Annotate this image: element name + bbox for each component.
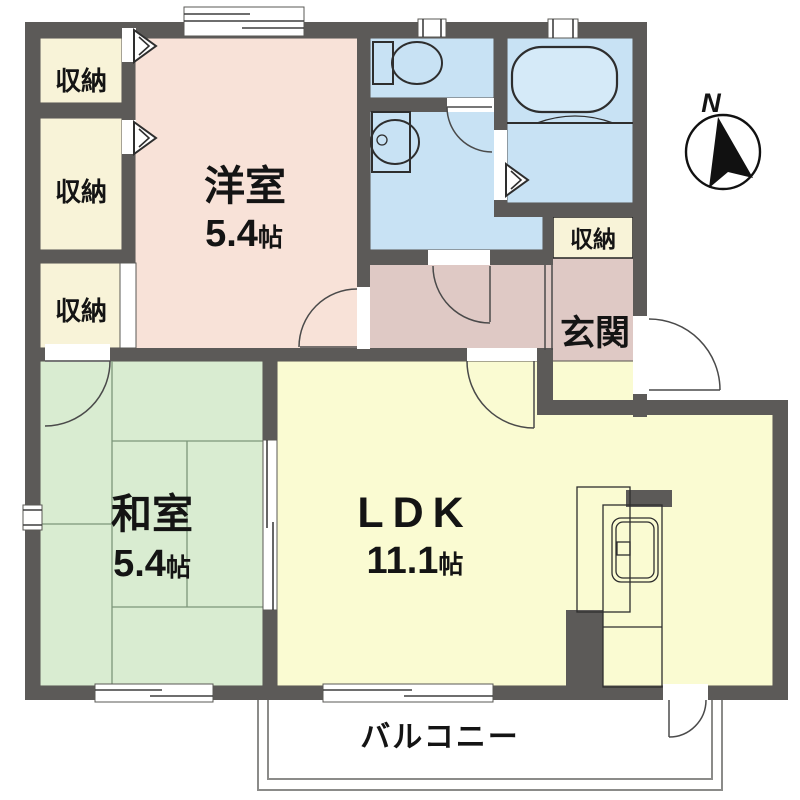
wall-segment xyxy=(357,348,467,361)
wall-segment xyxy=(357,22,370,290)
closet1-label: 収納 xyxy=(55,66,107,96)
north-label: N xyxy=(701,88,721,118)
wall-segment xyxy=(494,203,647,217)
floor-plan-canvas: N 収納 収納 収納 洋室 5.4帖 和室 5.4帖 LDK 11.1帖 玄関 … xyxy=(0,0,800,800)
closet3-door-opening xyxy=(45,344,110,362)
western-room-label: 洋室 xyxy=(204,163,286,209)
window-western-top xyxy=(184,7,304,36)
wall-segment xyxy=(773,400,788,700)
entrance-closet-label: 収納 xyxy=(570,226,616,252)
wall-segment xyxy=(25,103,135,118)
back-door-opening xyxy=(663,684,708,702)
wall-segment xyxy=(357,98,447,112)
floor-plan: N 収納 収納 収納 洋室 5.4帖 和室 5.4帖 LDK 11.1帖 玄関 … xyxy=(0,0,800,800)
sliding-door-japanese-ldk xyxy=(263,440,277,610)
window-japanese-bottom xyxy=(95,684,213,702)
hallway-floor xyxy=(370,265,553,350)
toilet-door-opening xyxy=(447,98,494,112)
western-door-opening xyxy=(357,287,370,349)
wall-segment xyxy=(25,250,135,263)
closet3-side-panel xyxy=(120,263,136,348)
wall-segment xyxy=(25,22,40,700)
kitchen-wall-stub xyxy=(566,610,603,700)
wall-segment xyxy=(537,348,553,400)
window-bath-top xyxy=(548,19,578,38)
sliding-door-balcony xyxy=(323,684,493,702)
closet3-label: 収納 xyxy=(55,296,107,326)
outside-area xyxy=(647,20,800,400)
ldk-label: LDK xyxy=(357,489,472,537)
closet2-label: 収納 xyxy=(55,177,107,207)
window-toilet-top xyxy=(418,19,446,37)
entrance-label: 玄関 xyxy=(560,314,630,353)
washroom-door-opening xyxy=(428,250,490,265)
window-japanese-left xyxy=(23,505,42,530)
japanese-room-label: 和室 xyxy=(111,491,193,537)
wall-segment xyxy=(357,250,428,265)
hall-ldk-door-opening xyxy=(467,348,537,361)
wall-segment xyxy=(490,250,553,265)
balcony-label: バルコニー xyxy=(360,721,519,754)
wall-segment xyxy=(537,400,788,415)
entrance-door-opening xyxy=(633,316,647,394)
